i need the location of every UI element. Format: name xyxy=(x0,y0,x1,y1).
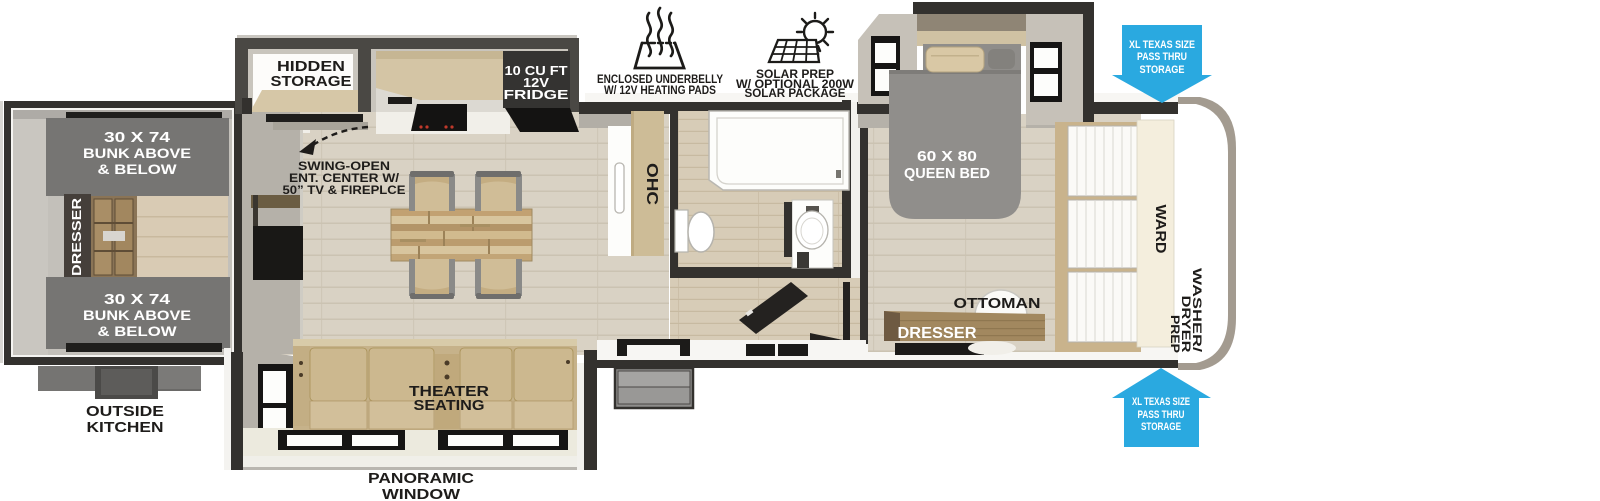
svg-text:HIDDEN: HIDDEN xyxy=(277,59,345,75)
svg-text:OUTSIDE: OUTSIDE xyxy=(86,403,164,420)
svg-text:WARD: WARD xyxy=(1152,205,1169,254)
svg-text:WINDOW: WINDOW xyxy=(382,486,461,501)
svg-text:W/ 12V HEATING PADS: W/ 12V HEATING PADS xyxy=(604,85,716,97)
svg-text:KITCHEN: KITCHEN xyxy=(87,419,164,436)
svg-text:OTTOMAN: OTTOMAN xyxy=(954,296,1041,312)
svg-text:SEATING: SEATING xyxy=(414,398,485,414)
svg-text:30 X 74: 30 X 74 xyxy=(104,292,170,308)
svg-text:30 X 74: 30 X 74 xyxy=(104,130,170,146)
svg-text:PREP: PREP xyxy=(1168,315,1182,353)
svg-text:& BELOW: & BELOW xyxy=(98,323,178,339)
svg-text:FRIDGE: FRIDGE xyxy=(504,88,569,102)
svg-text:QUEEN BED: QUEEN BED xyxy=(904,165,990,182)
svg-text:DRESSER: DRESSER xyxy=(898,325,977,342)
svg-text:BUNK ABOVE: BUNK ABOVE xyxy=(83,307,191,323)
svg-text:50” TV & FIREPLCE: 50” TV & FIREPLCE xyxy=(283,183,406,197)
svg-text:XL TEXAS SIZE: XL TEXAS SIZE xyxy=(1132,396,1190,408)
svg-text:SOLAR PACKAGE: SOLAR PACKAGE xyxy=(745,88,846,100)
svg-text:STORAGE: STORAGE xyxy=(1141,421,1181,433)
svg-text:STORAGE: STORAGE xyxy=(1140,64,1185,76)
svg-text:BUNK ABOVE: BUNK ABOVE xyxy=(83,145,191,161)
svg-text:PASS THRU: PASS THRU xyxy=(1138,409,1185,421)
svg-text:OHC: OHC xyxy=(643,163,660,206)
svg-text:PANORAMIC: PANORAMIC xyxy=(368,470,474,487)
svg-text:& BELOW: & BELOW xyxy=(98,161,178,177)
svg-text:DRESSER: DRESSER xyxy=(69,197,84,276)
svg-text:PASS THRU: PASS THRU xyxy=(1137,51,1187,63)
svg-text:XL TEXAS SIZE: XL TEXAS SIZE xyxy=(1129,39,1195,51)
svg-text:STORAGE: STORAGE xyxy=(271,74,352,90)
svg-text:60 X 80: 60 X 80 xyxy=(917,148,977,165)
